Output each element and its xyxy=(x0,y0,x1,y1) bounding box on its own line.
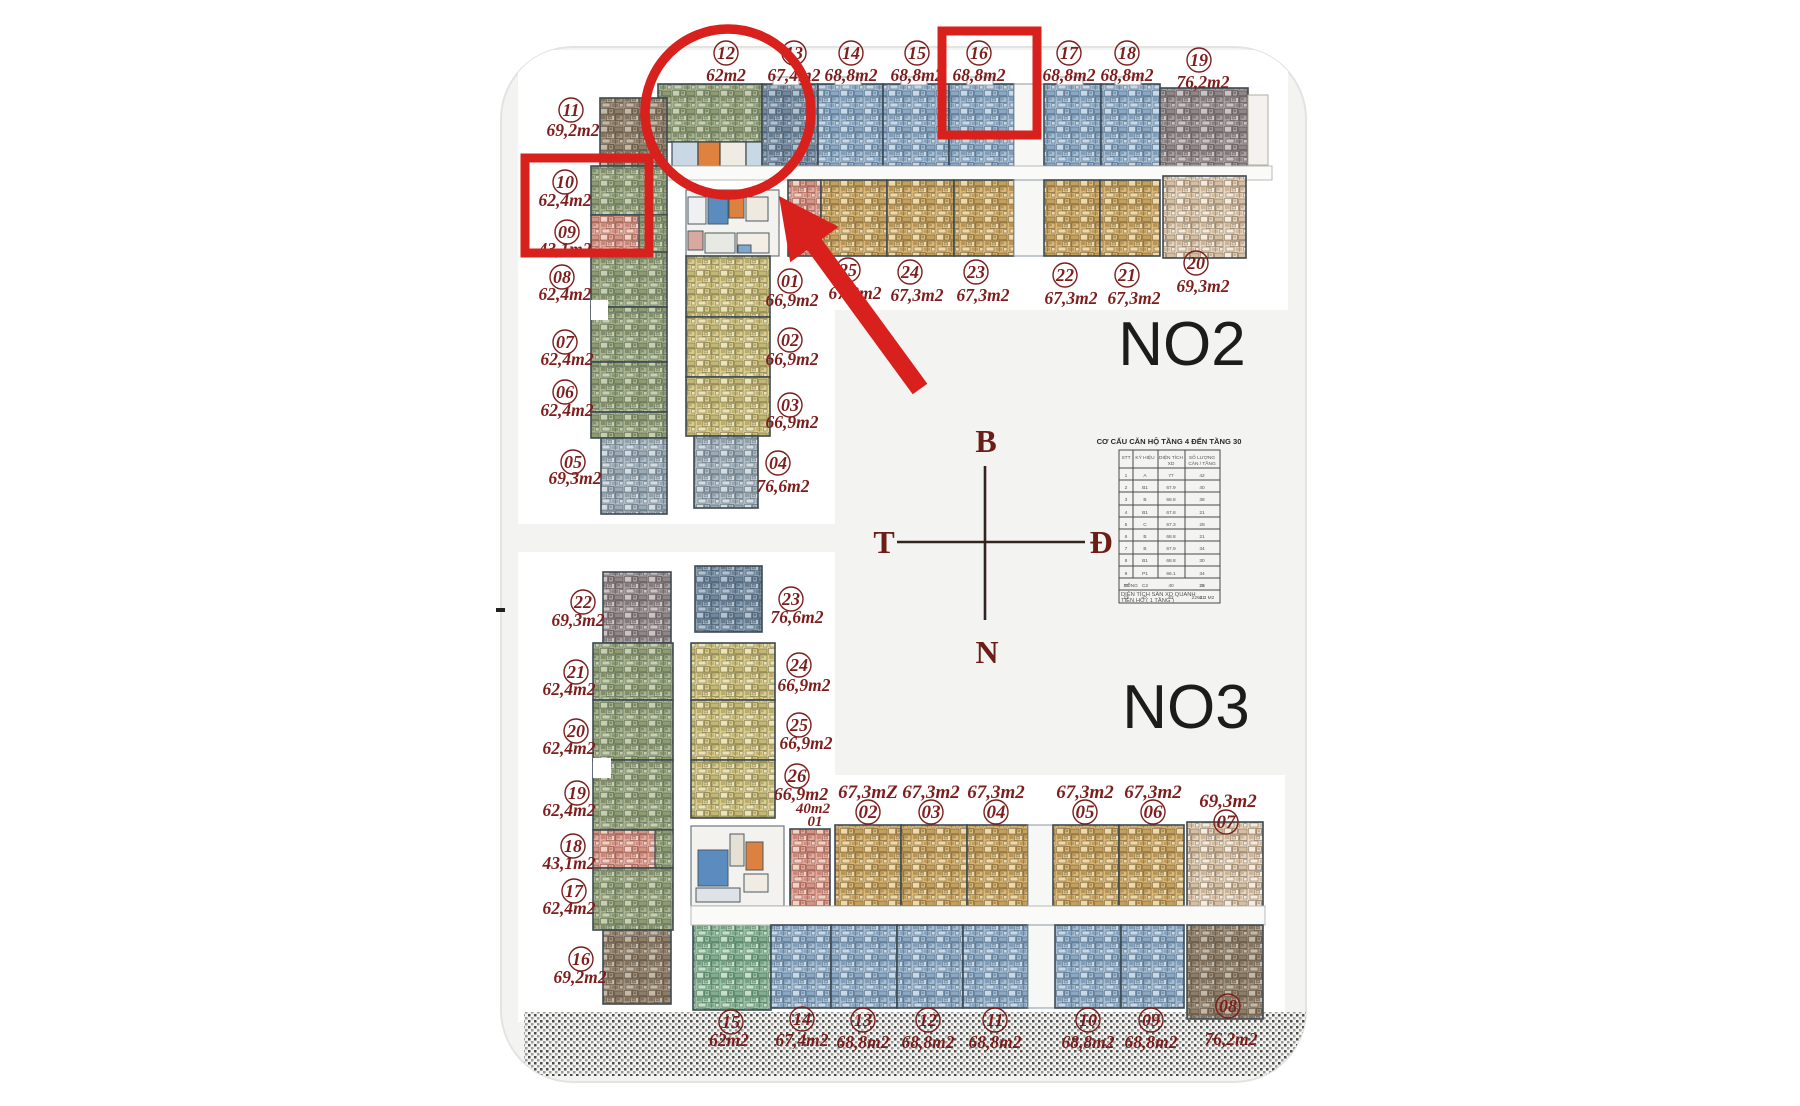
svg-text:68,8m2: 68,8m2 xyxy=(891,65,944,85)
svg-text:62,4m2: 62,4m2 xyxy=(541,349,594,369)
svg-text:05: 05 xyxy=(1076,802,1096,823)
svg-text:6: 6 xyxy=(1125,534,1128,540)
svg-text:8: 8 xyxy=(1125,558,1128,564)
svg-text:19: 19 xyxy=(1190,50,1208,70)
svg-text:68.8: 68.8 xyxy=(1166,534,1176,540)
svg-text:02: 02 xyxy=(859,802,879,823)
svg-text:B: B xyxy=(975,423,996,459)
svg-text:NO2: NO2 xyxy=(1118,310,1245,379)
svg-text:C: C xyxy=(1143,522,1147,528)
svg-text:CƠ CẤU CĂN HỘ TẦNG 4 ĐẾN TẦNG: CƠ CẤU CĂN HỘ TẦNG 4 ĐẾN TẦNG 30 xyxy=(1097,436,1242,446)
svg-text:76,2m2: 76,2m2 xyxy=(1205,1029,1258,1049)
svg-text:30: 30 xyxy=(1199,558,1205,564)
svg-text:77: 77 xyxy=(1168,473,1174,479)
svg-text:66,9m2: 66,9m2 xyxy=(780,733,833,753)
svg-text:38: 38 xyxy=(1199,497,1205,503)
svg-text:17: 17 xyxy=(1060,43,1079,63)
svg-text:62,4m2: 62,4m2 xyxy=(539,284,592,304)
svg-text:67,3m2: 67,3m2 xyxy=(1045,288,1098,308)
svg-text:67,4m2: 67,4m2 xyxy=(776,1030,829,1050)
svg-text:B1: B1 xyxy=(1142,485,1148,491)
svg-text:12: 12 xyxy=(919,1010,937,1030)
svg-text:67.9: 67.9 xyxy=(1166,546,1176,552)
svg-text:68,8m2: 68,8m2 xyxy=(953,65,1006,85)
svg-text:68.8: 68.8 xyxy=(1166,558,1176,564)
svg-text:68,8m2: 68,8m2 xyxy=(1062,1032,1115,1052)
svg-text:N: N xyxy=(975,634,998,670)
svg-text:67,3m2: 67,3m2 xyxy=(891,285,944,305)
svg-text:B: B xyxy=(1143,546,1146,552)
svg-text:18: 18 xyxy=(1118,43,1136,63)
svg-text:B: B xyxy=(1143,534,1146,540)
svg-text:06: 06 xyxy=(556,382,574,402)
svg-text:69,3m2: 69,3m2 xyxy=(552,610,605,630)
svg-text:4: 4 xyxy=(1125,510,1128,516)
svg-text:03: 03 xyxy=(922,802,941,823)
svg-text:5: 5 xyxy=(1125,522,1128,528)
svg-text:STT: STT xyxy=(1121,455,1130,461)
svg-text:NO3: NO3 xyxy=(1122,673,1249,742)
svg-text:01: 01 xyxy=(808,814,823,830)
svg-text:3: 3 xyxy=(1125,497,1128,503)
svg-text:62,4m2: 62,4m2 xyxy=(541,400,594,420)
svg-text:62,4m2: 62,4m2 xyxy=(543,679,596,699)
svg-text:26: 26 xyxy=(1199,583,1205,589)
svg-text:76,6m2: 76,6m2 xyxy=(757,476,810,496)
svg-text:11: 11 xyxy=(562,100,579,120)
svg-text:16: 16 xyxy=(970,43,988,63)
svg-text:66,9m2: 66,9m2 xyxy=(766,290,819,310)
svg-text:68,8m2: 68,8m2 xyxy=(969,1032,1022,1052)
svg-text:67,3m2: 67,3m2 xyxy=(957,285,1010,305)
svg-text:66,9m2: 66,9m2 xyxy=(778,675,831,695)
svg-text:24: 24 xyxy=(789,655,808,675)
svg-text:28: 28 xyxy=(1199,522,1205,528)
svg-text:43,1m2: 43,1m2 xyxy=(542,853,596,873)
svg-text:P1: P1 xyxy=(1142,571,1148,577)
svg-text:B: B xyxy=(1143,497,1146,503)
svg-text:21: 21 xyxy=(1199,510,1205,516)
svg-text:02: 02 xyxy=(781,330,799,350)
svg-text:TỔNG: TỔNG xyxy=(1124,582,1138,589)
svg-text:09: 09 xyxy=(1142,1010,1160,1030)
svg-text:34: 34 xyxy=(1199,546,1205,552)
svg-text:06: 06 xyxy=(1144,802,1164,823)
svg-text:62,4m2: 62,4m2 xyxy=(539,190,592,210)
svg-text:SỐ LƯỢNG: SỐ LƯỢNG xyxy=(1189,454,1216,461)
svg-text:2: 2 xyxy=(1125,485,1128,491)
svg-text:21: 21 xyxy=(1199,534,1205,540)
svg-text:9: 9 xyxy=(1125,571,1128,577)
svg-text:69,2m2: 69,2m2 xyxy=(554,967,607,987)
svg-text:12: 12 xyxy=(717,43,735,63)
svg-text:62,4m2: 62,4m2 xyxy=(543,800,596,820)
svg-text:76,6m2: 76,6m2 xyxy=(771,607,824,627)
svg-text:68,8m2: 68,8m2 xyxy=(825,65,878,85)
svg-text:68,8m2: 68,8m2 xyxy=(1043,65,1096,85)
svg-text:14: 14 xyxy=(793,1009,811,1029)
svg-text:B1: B1 xyxy=(1142,558,1148,564)
svg-text:B1: B1 xyxy=(1142,510,1148,516)
svg-text:23: 23 xyxy=(966,262,985,282)
svg-text:42: 42 xyxy=(1199,473,1205,479)
svg-text:68,8m2: 68,8m2 xyxy=(902,1032,955,1052)
svg-text:62m2: 62m2 xyxy=(706,65,746,85)
svg-text:16: 16 xyxy=(572,949,590,969)
svg-text:68,8m2: 68,8m2 xyxy=(1125,1032,1178,1052)
svg-text:66,9m2: 66,9m2 xyxy=(766,412,819,432)
svg-text:01: 01 xyxy=(781,271,799,291)
svg-text:2292.3 M2: 2292.3 M2 xyxy=(1192,595,1215,601)
svg-text:C2: C2 xyxy=(1142,583,1148,589)
svg-text:Đ: Đ xyxy=(1089,524,1112,560)
svg-text:25: 25 xyxy=(789,715,808,735)
svg-text:DIỆN TÍCH SÀN XD QUANH: DIỆN TÍCH SÀN XD QUANH xyxy=(1121,590,1196,598)
svg-text:62,4m2: 62,4m2 xyxy=(543,898,596,918)
svg-text:62,4m2: 62,4m2 xyxy=(543,738,596,758)
svg-text:68,8m2: 68,8m2 xyxy=(1101,65,1154,85)
svg-text:TIỆN HỘ ( 1 TẦNG ): TIỆN HỘ ( 1 TẦNG ) xyxy=(1121,596,1174,604)
svg-text:67,3m2: 67,3m2 xyxy=(1108,288,1161,308)
svg-text:40: 40 xyxy=(1168,583,1174,589)
svg-text:34: 34 xyxy=(1199,571,1205,577)
svg-text:66.1: 66.1 xyxy=(1166,571,1176,577)
svg-text:T: T xyxy=(873,524,894,560)
svg-text:69,3m2: 69,3m2 xyxy=(1199,791,1257,812)
svg-text:69,3m2: 69,3m2 xyxy=(549,468,602,488)
svg-text:23: 23 xyxy=(781,589,800,609)
svg-text:15: 15 xyxy=(908,43,926,63)
svg-text:66,9m2: 66,9m2 xyxy=(766,349,819,369)
svg-text:1: 1 xyxy=(1125,473,1128,479)
svg-text:67.9: 67.9 xyxy=(1166,485,1176,491)
svg-text:20: 20 xyxy=(1186,253,1205,273)
svg-text:10: 10 xyxy=(556,172,574,192)
svg-text:XD: XD xyxy=(1168,461,1175,467)
svg-text:76,2m2: 76,2m2 xyxy=(1177,72,1230,92)
svg-text:07: 07 xyxy=(1217,812,1238,833)
svg-text:14: 14 xyxy=(842,43,860,63)
svg-text:7: 7 xyxy=(1125,546,1128,552)
svg-text:04: 04 xyxy=(987,802,1006,823)
svg-text:10: 10 xyxy=(1079,1010,1097,1030)
svg-text:67.8: 67.8 xyxy=(1166,510,1176,516)
svg-text:08: 08 xyxy=(1219,996,1237,1016)
svg-text:22: 22 xyxy=(573,592,592,612)
svg-text:67.3: 67.3 xyxy=(1166,522,1176,528)
svg-text:40: 40 xyxy=(1199,485,1205,491)
svg-text:22: 22 xyxy=(1055,265,1074,285)
svg-text:04: 04 xyxy=(769,453,787,473)
svg-text:62m2: 62m2 xyxy=(709,1030,749,1050)
svg-text:68.8: 68.8 xyxy=(1166,497,1176,503)
svg-text:69,3m2: 69,3m2 xyxy=(1177,276,1230,296)
svg-text:24: 24 xyxy=(900,262,919,282)
svg-text:69,2m2: 69,2m2 xyxy=(547,120,600,140)
svg-text:CĂN / TẦNG: CĂN / TẦNG xyxy=(1188,460,1216,467)
svg-text:68,8m2: 68,8m2 xyxy=(837,1032,890,1052)
svg-text:15: 15 xyxy=(722,1012,740,1032)
svg-text:13: 13 xyxy=(854,1010,872,1030)
svg-text:21: 21 xyxy=(1117,265,1136,285)
svg-text:11: 11 xyxy=(986,1010,1003,1030)
